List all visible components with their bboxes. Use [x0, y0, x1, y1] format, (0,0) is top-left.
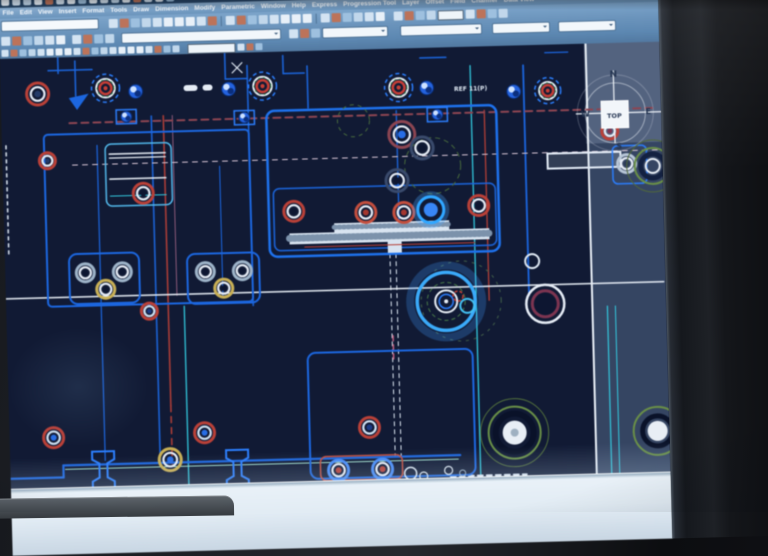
toolbar-icon[interactable] — [142, 18, 151, 27]
toolbar-icon[interactable] — [488, 9, 497, 18]
quick-access-icon[interactable] — [1, 0, 9, 6]
quick-access-icon[interactable] — [56, 0, 64, 4]
toolbar-icon[interactable] — [255, 43, 262, 50]
toolbar-icon[interactable] — [175, 17, 184, 26]
toolbar-icon[interactable] — [83, 34, 92, 43]
toolbar-field[interactable] — [187, 42, 235, 53]
toolbar-icon[interactable] — [34, 35, 43, 44]
viewcube-north-label[interactable]: N — [609, 70, 617, 80]
toolbar-icon[interactable] — [259, 15, 268, 24]
quick-access-icon[interactable] — [89, 0, 97, 4]
quick-access-icon[interactable] — [122, 0, 130, 3]
toolbar-icon[interactable] — [46, 49, 53, 56]
menu-format[interactable]: Format — [82, 5, 104, 17]
toolbar-icon[interactable] — [23, 36, 32, 45]
toolbar-icon-group — [109, 16, 217, 28]
toolbar-icon-group — [394, 11, 436, 21]
toolbar-icon[interactable] — [303, 14, 312, 23]
toolbar-icon-group — [226, 14, 312, 25]
toolbar-icon[interactable] — [64, 48, 71, 55]
toolbar-icon[interactable] — [164, 17, 173, 26]
toolbar-icon[interactable] — [499, 9, 508, 18]
quick-access-icon[interactable] — [166, 0, 174, 2]
menu-edit[interactable]: Edit — [20, 7, 33, 18]
toolbar-icon[interactable] — [466, 10, 475, 19]
dropdown-combo[interactable] — [322, 25, 388, 38]
menu-help[interactable]: Help — [292, 0, 306, 11]
toolbar-icon[interactable] — [94, 34, 103, 43]
menu-express[interactable]: Express — [312, 0, 338, 11]
toolbar-icon-group — [289, 28, 320, 38]
toolbar-icon[interactable] — [237, 16, 246, 25]
toolbar-icon[interactable] — [248, 15, 257, 24]
menu-window[interactable]: Window — [261, 0, 286, 12]
toolbar-separator — [316, 13, 317, 23]
toolbar-icon[interactable] — [131, 18, 140, 27]
toolbar-icon[interactable] — [56, 35, 65, 44]
menu-draw[interactable]: Draw — [133, 4, 149, 15]
toolbar-icon[interactable] — [270, 15, 279, 24]
quick-access-icon[interactable] — [78, 0, 86, 4]
toolbar-icon[interactable] — [100, 47, 107, 54]
toolbar-icon[interactable] — [109, 19, 118, 28]
toolbar-icon[interactable] — [416, 11, 425, 20]
menu-dimension[interactable]: Dimension — [155, 3, 189, 15]
toolbar-icon[interactable] — [145, 46, 152, 53]
toolbar-icon[interactable] — [376, 12, 385, 21]
monitor-bezel — [658, 0, 768, 539]
toolbar-icon[interactable] — [354, 12, 363, 21]
toolbar-icon[interactable] — [105, 33, 114, 42]
toolbar-icon[interactable] — [405, 11, 414, 20]
toolbar-icon-group — [466, 9, 508, 19]
slot-feature — [92, 451, 115, 489]
toolbar-icon[interactable] — [82, 48, 89, 55]
dropdown-combo[interactable] — [492, 21, 550, 34]
toolbar-icon[interactable] — [91, 47, 98, 54]
menu-tools[interactable]: Tools — [110, 5, 127, 16]
viewcube-top-label: TOP — [607, 112, 622, 120]
toolbar-icon[interactable] — [394, 11, 403, 20]
quick-access-icon[interactable] — [133, 0, 141, 2]
toolbar-icon-group — [1, 35, 65, 46]
toolbar-icon[interactable] — [281, 14, 290, 23]
toolbar-icon[interactable] — [37, 49, 44, 56]
toolbar-icon[interactable] — [1, 36, 10, 45]
quick-access-icon[interactable] — [67, 0, 75, 4]
toolbar-icon[interactable] — [246, 43, 253, 50]
toolbar-icon[interactable] — [311, 28, 320, 37]
toolbar-icon-group — [72, 33, 114, 43]
foreground-desk-object — [0, 495, 234, 518]
toolbar-icon[interactable] — [1, 50, 8, 57]
toolbar-icon[interactable] — [172, 45, 179, 52]
cad-canvas-svg[interactable]: TOPNWESREF 11(P) — [0, 42, 671, 489]
cad-application-window: FileEditViewInsertFormatToolsDrawDimensi… — [0, 0, 672, 554]
toolbar-icon[interactable] — [343, 13, 352, 22]
toolbar-separator — [221, 16, 222, 26]
toolbar-icon[interactable] — [226, 16, 235, 25]
toolbar-icon[interactable] — [208, 16, 217, 25]
quick-access-icon[interactable] — [34, 0, 42, 5]
toolbar-icon[interactable] — [45, 35, 54, 44]
monitor: FileEditViewInsertFormatToolsDrawDimensi… — [0, 0, 768, 556]
quick-access-icon[interactable] — [155, 0, 163, 2]
toolbar-icon[interactable] — [365, 12, 374, 21]
toolbar-field[interactable] — [438, 9, 464, 20]
toolbar-icon[interactable] — [300, 28, 309, 37]
toolbar-icon[interactable] — [163, 46, 170, 53]
quick-access-icon[interactable] — [111, 0, 119, 3]
toolbar-icon[interactable] — [118, 47, 125, 54]
toolbar-icon[interactable] — [73, 48, 80, 55]
toolbar-icon[interactable] — [109, 47, 116, 54]
quick-access-icon[interactable] — [45, 0, 53, 5]
viewcube-east-label[interactable]: E — [645, 107, 651, 116]
dropdown-combo[interactable] — [400, 23, 482, 36]
menu-insert[interactable]: Insert — [59, 6, 77, 17]
toolbar-icon-group — [321, 12, 385, 23]
menu-modify[interactable]: Modify — [194, 2, 215, 14]
toolbar-icon[interactable] — [477, 9, 486, 18]
toolbar-icon[interactable] — [197, 17, 206, 26]
toolbar-icon[interactable] — [154, 46, 161, 53]
toolbar-icon[interactable] — [136, 46, 143, 53]
ref-annotation: REF 11(P) — [454, 85, 488, 93]
quick-access-icon[interactable] — [23, 0, 31, 5]
toolbar-icon[interactable] — [153, 18, 162, 27]
toolbar-icon[interactable] — [10, 50, 17, 57]
toolbar-icon[interactable] — [55, 48, 62, 55]
command-input[interactable] — [1, 18, 99, 32]
viewcube-south-label[interactable]: S — [616, 142, 622, 151]
menu-view[interactable]: View — [38, 7, 53, 18]
toolbar-icon[interactable] — [321, 13, 330, 22]
toolbar-icon[interactable] — [237, 44, 244, 51]
quick-access-icon[interactable] — [144, 0, 152, 2]
toolbar-icon[interactable] — [186, 17, 195, 26]
toolbar-icon[interactable] — [292, 14, 301, 23]
quick-access-icon[interactable] — [12, 0, 20, 6]
toolbar-icon[interactable] — [72, 34, 81, 43]
toolbar-icon[interactable] — [427, 11, 436, 20]
menu-file[interactable]: File — [2, 8, 13, 19]
menu-parametric[interactable]: Parametric — [221, 1, 255, 13]
toolbar-icon[interactable] — [12, 36, 21, 45]
toolbar-icon-group — [237, 43, 262, 51]
toolbar-icon[interactable] — [289, 29, 298, 38]
quick-access-icon[interactable] — [100, 0, 108, 3]
viewcube-west-label[interactable]: W — [581, 110, 590, 119]
drawing-canvas[interactable]: TOPNWESREF 11(P) — [0, 42, 671, 489]
toolbar-icon[interactable] — [127, 46, 134, 53]
dropdown-combo[interactable] — [558, 19, 616, 32]
toolbar-icon[interactable] — [332, 13, 341, 22]
toolbar-icon[interactable] — [19, 49, 26, 56]
toolbar-icon[interactable] — [28, 49, 35, 56]
toolbar-icon[interactable] — [120, 19, 129, 28]
